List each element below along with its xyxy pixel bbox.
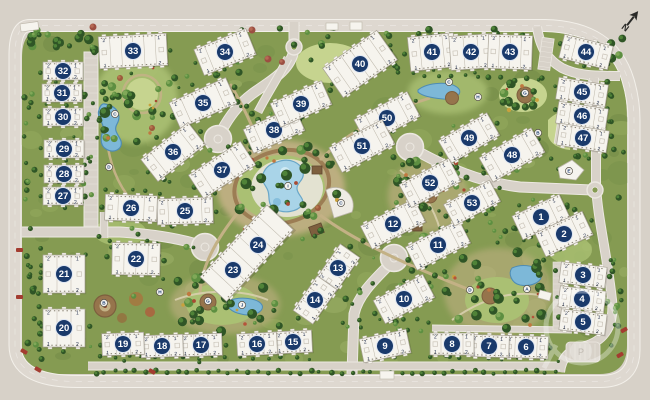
svg-text:2: 2 xyxy=(73,97,76,103)
svg-text:53: 53 xyxy=(467,198,478,209)
svg-text:1: 1 xyxy=(241,350,244,356)
svg-text:2: 2 xyxy=(74,121,77,127)
svg-text:22: 22 xyxy=(131,254,142,265)
svg-text:18: 18 xyxy=(157,341,168,352)
svg-text:2: 2 xyxy=(184,336,187,342)
svg-text:1: 1 xyxy=(76,257,79,263)
svg-text:1: 1 xyxy=(278,348,281,354)
svg-text:10: 10 xyxy=(399,294,410,305)
svg-text:21: 21 xyxy=(59,269,70,280)
svg-text:I: I xyxy=(287,184,288,189)
svg-text:2: 2 xyxy=(75,153,78,159)
svg-text:2: 2 xyxy=(465,350,468,356)
svg-text:1: 1 xyxy=(500,337,503,343)
svg-text:2: 2 xyxy=(213,350,216,356)
svg-text:47: 47 xyxy=(578,133,589,144)
svg-text:2: 2 xyxy=(151,270,154,276)
svg-text:1: 1 xyxy=(48,153,51,159)
svg-text:40: 40 xyxy=(355,59,366,70)
svg-text:35: 35 xyxy=(198,98,209,109)
svg-text:1: 1 xyxy=(539,338,542,344)
svg-text:2: 2 xyxy=(268,349,271,355)
svg-text:6: 6 xyxy=(523,342,528,353)
svg-text:G: G xyxy=(523,91,527,96)
svg-text:1: 1 xyxy=(267,334,270,340)
svg-text:45: 45 xyxy=(577,87,588,98)
svg-text:1: 1 xyxy=(74,189,77,195)
svg-text:5: 5 xyxy=(580,317,586,328)
svg-text:25: 25 xyxy=(180,206,191,217)
svg-text:16: 16 xyxy=(252,339,263,350)
svg-text:2: 2 xyxy=(434,335,437,341)
svg-text:1: 1 xyxy=(204,199,207,205)
svg-text:43: 43 xyxy=(505,47,516,58)
svg-text:38: 38 xyxy=(269,125,280,136)
svg-text:48: 48 xyxy=(507,150,518,161)
svg-text:19: 19 xyxy=(118,339,129,350)
svg-text:49: 49 xyxy=(464,133,475,144)
svg-text:20: 20 xyxy=(59,323,70,334)
svg-text:52: 52 xyxy=(425,178,436,189)
svg-text:14: 14 xyxy=(310,295,321,306)
svg-text:1: 1 xyxy=(46,97,49,103)
svg-text:2: 2 xyxy=(47,257,50,263)
svg-text:46: 46 xyxy=(577,111,588,122)
svg-text:1: 1 xyxy=(174,336,177,342)
svg-text:30: 30 xyxy=(58,112,69,123)
svg-text:1: 1 xyxy=(109,215,112,221)
svg-text:1: 1 xyxy=(47,75,50,81)
svg-text:1: 1 xyxy=(538,212,544,223)
svg-text:2: 2 xyxy=(561,229,566,240)
svg-text:1: 1 xyxy=(74,64,77,70)
svg-text:1: 1 xyxy=(161,220,164,226)
svg-text:2: 2 xyxy=(76,288,79,294)
svg-text:23: 23 xyxy=(228,265,239,276)
svg-text:2: 2 xyxy=(47,311,50,317)
svg-text:1: 1 xyxy=(73,86,76,92)
svg-text:1: 1 xyxy=(145,352,148,358)
svg-text:1: 1 xyxy=(157,35,160,41)
svg-text:11: 11 xyxy=(433,240,444,251)
svg-text:9: 9 xyxy=(382,341,387,352)
svg-text:G: G xyxy=(206,299,210,304)
svg-text:2: 2 xyxy=(74,75,77,81)
svg-text:2: 2 xyxy=(204,218,207,224)
svg-text:2: 2 xyxy=(241,335,244,341)
svg-text:J: J xyxy=(241,303,244,308)
svg-text:3: 3 xyxy=(580,270,585,281)
svg-text:2: 2 xyxy=(492,36,495,42)
svg-text:1: 1 xyxy=(47,288,50,294)
svg-text:15: 15 xyxy=(288,337,299,348)
svg-text:1: 1 xyxy=(491,63,494,69)
svg-text:2: 2 xyxy=(135,349,138,355)
svg-text:1: 1 xyxy=(47,342,50,348)
svg-text:2: 2 xyxy=(47,110,50,116)
svg-text:8: 8 xyxy=(449,339,454,350)
svg-text:41: 41 xyxy=(427,47,438,58)
svg-text:2: 2 xyxy=(174,351,177,357)
svg-text:12: 12 xyxy=(388,219,399,230)
svg-text:2: 2 xyxy=(539,353,542,359)
svg-text:2: 2 xyxy=(116,244,119,250)
svg-text:1: 1 xyxy=(75,167,78,173)
svg-text:1: 1 xyxy=(48,178,51,184)
svg-text:44: 44 xyxy=(581,47,592,58)
svg-text:2: 2 xyxy=(47,64,50,70)
svg-text:2: 2 xyxy=(46,86,49,92)
svg-text:34: 34 xyxy=(220,47,231,58)
svg-text:2: 2 xyxy=(47,189,50,195)
svg-text:1: 1 xyxy=(148,197,151,203)
svg-text:2: 2 xyxy=(74,200,77,206)
svg-text:2: 2 xyxy=(48,167,51,173)
svg-text:1: 1 xyxy=(76,311,79,317)
svg-text:1: 1 xyxy=(74,110,77,116)
svg-text:33: 33 xyxy=(128,46,139,57)
svg-text:1: 1 xyxy=(151,245,154,251)
svg-text:1: 1 xyxy=(104,63,107,69)
svg-text:29: 29 xyxy=(59,144,70,155)
svg-text:P: P xyxy=(578,347,584,357)
svg-text:2: 2 xyxy=(161,200,164,206)
svg-text:39: 39 xyxy=(296,99,307,110)
svg-text:1: 1 xyxy=(47,121,50,127)
svg-text:2: 2 xyxy=(500,352,503,358)
svg-text:2: 2 xyxy=(159,60,162,66)
svg-text:13: 13 xyxy=(333,263,344,274)
svg-text:1: 1 xyxy=(213,335,216,341)
svg-text:2: 2 xyxy=(75,178,78,184)
svg-text:2: 2 xyxy=(76,342,79,348)
svg-text:7: 7 xyxy=(486,341,491,352)
svg-text:28: 28 xyxy=(59,169,70,180)
svg-text:17: 17 xyxy=(196,340,207,351)
svg-text:2: 2 xyxy=(278,333,281,339)
svg-text:1: 1 xyxy=(135,334,138,340)
svg-text:31: 31 xyxy=(57,88,68,99)
svg-text:2: 2 xyxy=(303,347,306,353)
svg-text:1: 1 xyxy=(106,350,109,356)
svg-text:37: 37 xyxy=(217,165,228,176)
svg-text:27: 27 xyxy=(58,191,69,202)
svg-text:51: 51 xyxy=(357,141,368,152)
svg-text:2: 2 xyxy=(145,337,148,343)
svg-text:1: 1 xyxy=(465,335,468,341)
svg-text:2: 2 xyxy=(522,64,525,70)
svg-text:1: 1 xyxy=(47,200,50,206)
svg-text:1: 1 xyxy=(434,350,437,356)
svg-text:1: 1 xyxy=(302,332,305,338)
svg-text:2: 2 xyxy=(48,142,51,148)
svg-text:E: E xyxy=(567,169,570,174)
svg-text:1: 1 xyxy=(184,351,187,357)
svg-text:1: 1 xyxy=(75,142,78,148)
svg-text:1: 1 xyxy=(523,37,526,43)
svg-text:32: 32 xyxy=(58,66,69,77)
svg-text:1: 1 xyxy=(116,269,119,275)
svg-text:2: 2 xyxy=(102,38,105,44)
svg-text:2: 2 xyxy=(106,335,109,341)
svg-text:4: 4 xyxy=(579,294,585,305)
svg-text:2: 2 xyxy=(148,216,151,222)
svg-text:42: 42 xyxy=(466,47,477,58)
svg-text:26: 26 xyxy=(126,203,137,214)
svg-text:2: 2 xyxy=(109,196,112,202)
svg-text:24: 24 xyxy=(253,240,264,251)
svg-text:36: 36 xyxy=(168,147,179,158)
